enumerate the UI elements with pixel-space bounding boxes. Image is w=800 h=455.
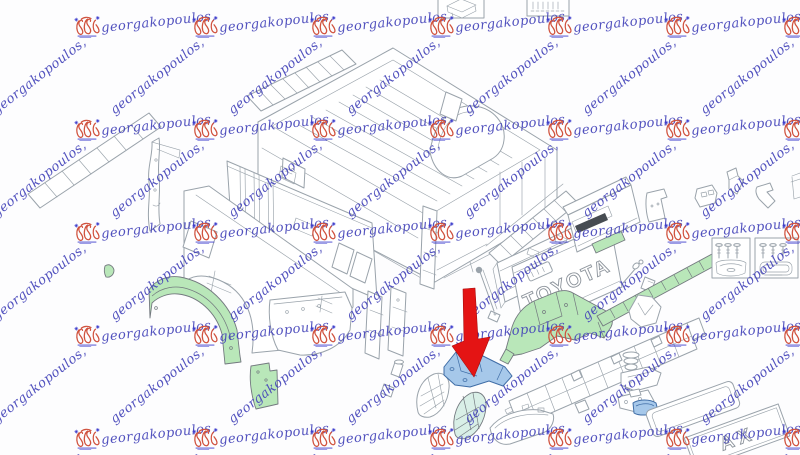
fender-liner-1 [417,373,449,417]
detail-box-2 [755,238,798,278]
cone-part [727,168,743,194]
fender-liner-2 [454,392,486,438]
strut-rod [476,267,500,322]
edge-part-right [791,173,800,199]
tailgate-handle-panel [563,177,640,253]
parts-diagram-page: TOYOTA [0,0,800,455]
bracket-holes [695,185,717,207]
mud-flap-green [250,363,278,409]
hook-bracket [756,183,775,208]
mud-flap-right [646,189,667,222]
parts-line-drawing: TOYOTA [0,0,800,455]
small-parts [381,360,404,397]
mud-flap-white [269,292,352,355]
pillar-panel [148,138,180,231]
stake-rack-left [28,113,161,208]
screw-icons [716,244,740,258]
detail-box-1 [712,238,750,278]
cross-member [500,291,612,364]
green-sliver [104,265,114,277]
wheel-arch-trim [149,277,241,364]
top-box-2 [527,0,569,16]
top-box-1 [438,0,484,18]
